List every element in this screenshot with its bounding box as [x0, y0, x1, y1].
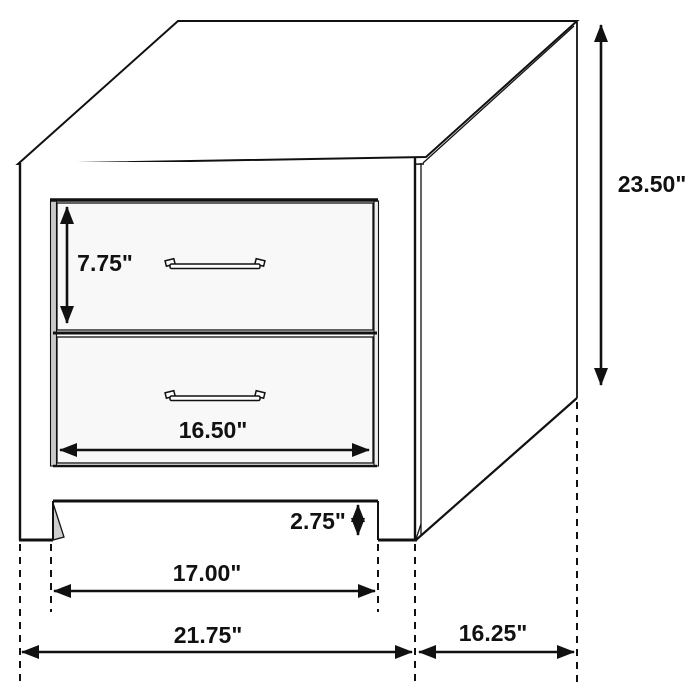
dimension-label-base-clearance: 2.75": [290, 510, 346, 533]
dimension-label-side-depth: 16.25": [459, 622, 527, 645]
dimension-label-between-legs-width: 17.00": [173, 562, 241, 585]
nightstand-line-drawing: [0, 0, 700, 700]
dimension-diagram: 23.50" 7.75" 16.50" 2.75" 17.00" 21.75" …: [0, 0, 700, 700]
front-face: [19, 158, 421, 540]
dimension-label-drawer-height: 7.75": [77, 252, 133, 275]
left-leg-inner-side: [53, 503, 64, 540]
dimension-label-overall-width: 21.75": [174, 624, 242, 647]
dimension-label-drawer-width: 16.50": [179, 419, 247, 442]
dimension-label-overall-height: 23.50": [618, 173, 686, 196]
